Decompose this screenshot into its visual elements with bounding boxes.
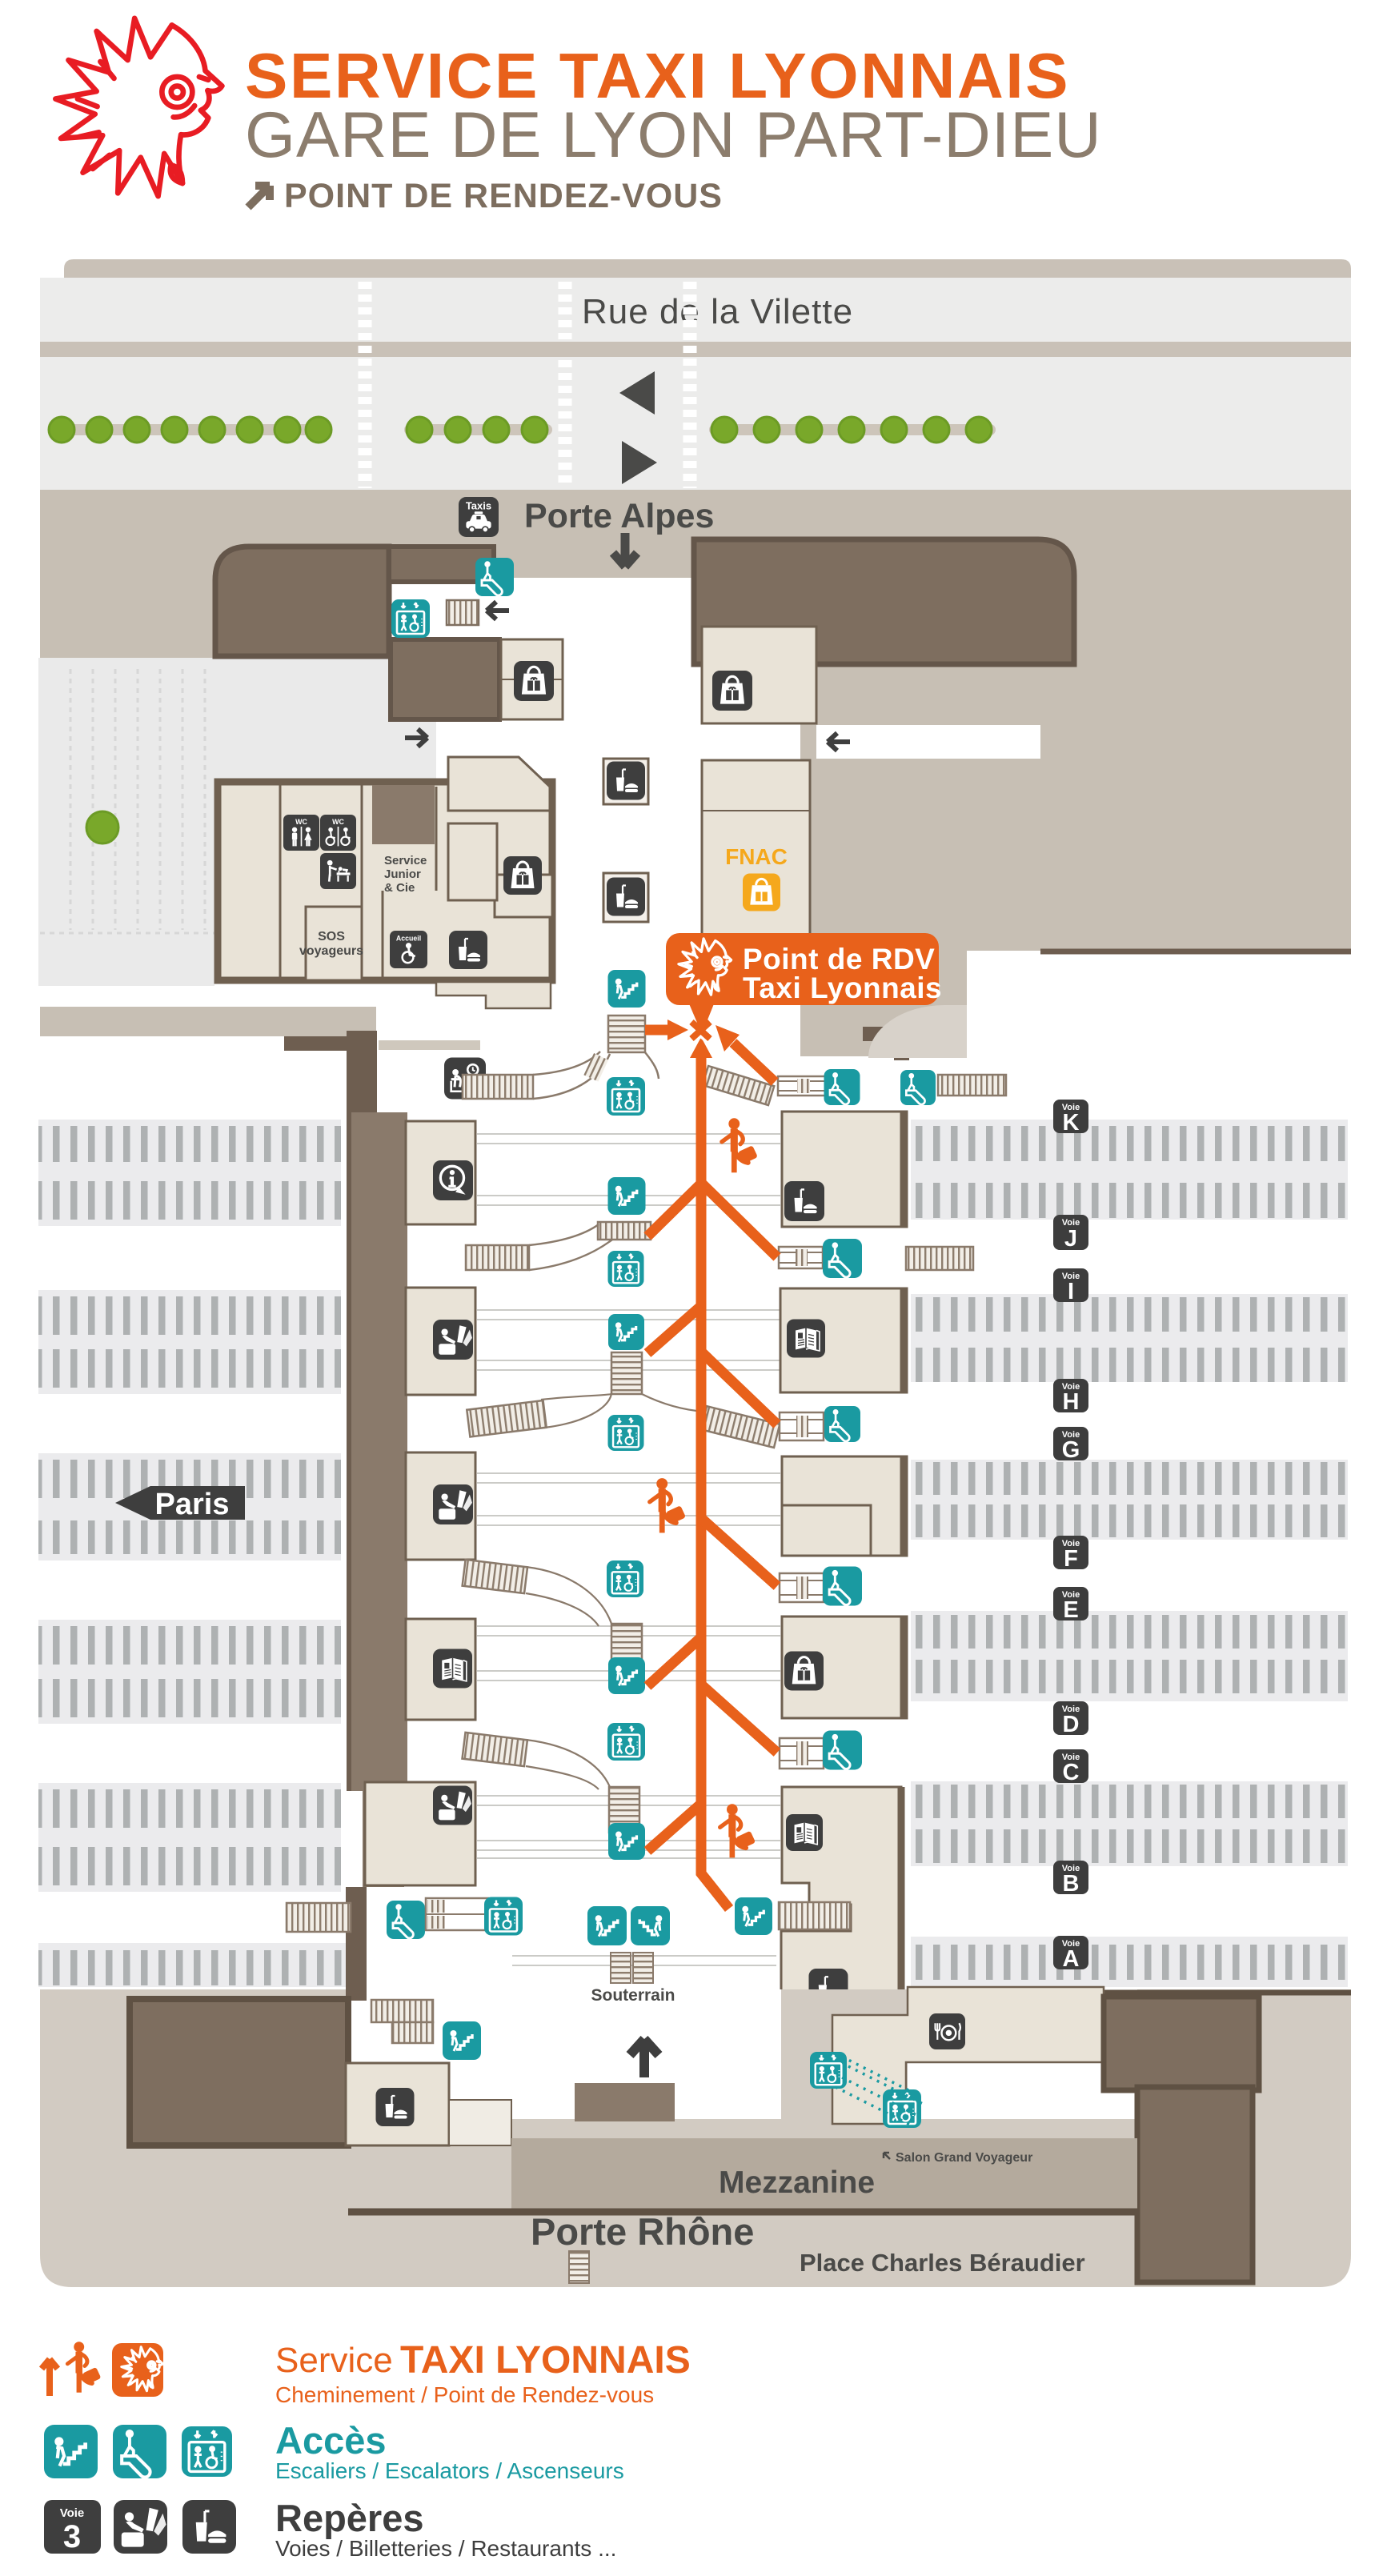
- svg-text:H: H: [1063, 1389, 1080, 1415]
- svg-text:GARE DE LYON PART-DIEU: GARE DE LYON PART-DIEU: [245, 99, 1102, 171]
- svg-text:E: E: [1063, 1597, 1078, 1623]
- svg-text:Accès: Accès: [275, 2419, 387, 2462]
- svg-text:& Cie: & Cie: [384, 881, 415, 895]
- svg-text:Voies / Billetteries / Restaur: Voies / Billetteries / Restaurants ...: [275, 2536, 616, 2561]
- svg-text:Paris: Paris: [155, 1488, 230, 1521]
- svg-text:G: G: [1062, 1437, 1080, 1463]
- svg-text:Cheminement / Point de Rendez-: Cheminement / Point de Rendez-vous: [275, 2382, 654, 2407]
- svg-text:J: J: [1064, 1226, 1077, 1252]
- svg-text:Porte Rhône: Porte Rhône: [531, 2210, 754, 2253]
- svg-text:A: A: [1063, 1946, 1080, 1972]
- svg-text:Souterrain: Souterrain: [591, 1986, 675, 2005]
- svg-text:voyageurs: voyageurs: [299, 944, 363, 958]
- svg-text:I: I: [1068, 1279, 1074, 1304]
- svg-text:Rue de la Vilette: Rue de la Vilette: [582, 292, 853, 331]
- svg-text:FNAC: FNAC: [725, 844, 788, 869]
- svg-text:F: F: [1064, 1546, 1078, 1572]
- svg-text:Porte Alpes: Porte Alpes: [524, 497, 714, 535]
- svg-text:Voie: Voie: [60, 2506, 85, 2520]
- svg-text:Service: Service: [384, 854, 427, 867]
- svg-text:Service: Service: [275, 2341, 393, 2380]
- svg-text:Salon Grand Voyageur: Salon Grand Voyageur: [896, 2151, 1032, 2165]
- svg-text:POINT DE RENDEZ-VOUS: POINT DE RENDEZ-VOUS: [284, 177, 723, 215]
- svg-text:TAXI LYONNAIS: TAXI LYONNAIS: [400, 2339, 691, 2382]
- svg-text:Point de RDV: Point de RDV: [743, 943, 935, 976]
- svg-text:Escaliers / Escalators / Ascen: Escaliers / Escalators / Ascenseurs: [275, 2458, 624, 2483]
- svg-text:3: 3: [63, 2519, 81, 2554]
- svg-text:Taxi Lyonnais: Taxi Lyonnais: [743, 972, 942, 1004]
- svg-text:Mezzanine: Mezzanine: [719, 2165, 875, 2200]
- svg-text:Junior: Junior: [384, 867, 421, 881]
- svg-text:C: C: [1063, 1760, 1080, 1785]
- svg-text:Place Charles Béraudier: Place Charles Béraudier: [800, 2249, 1085, 2277]
- svg-text:B: B: [1063, 1871, 1080, 1897]
- svg-text:SOS: SOS: [318, 930, 345, 943]
- svg-text:D: D: [1063, 1712, 1080, 1737]
- svg-text:Repères: Repères: [275, 2497, 424, 2539]
- svg-text:K: K: [1063, 1110, 1080, 1136]
